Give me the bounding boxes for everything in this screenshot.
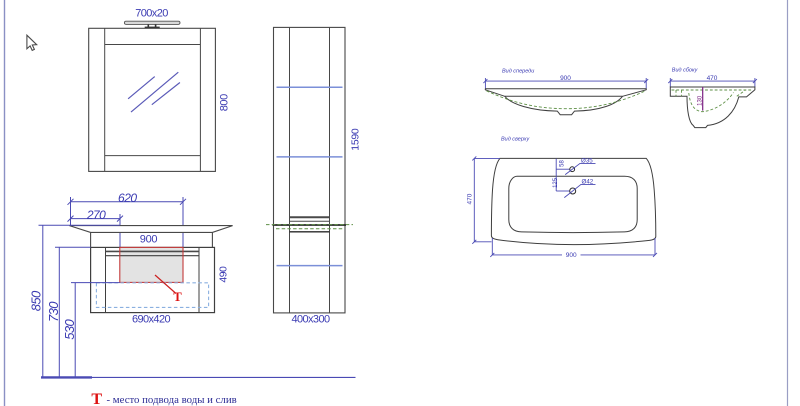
svg-text:900: 900 <box>140 233 158 245</box>
svg-text:T: T <box>91 391 102 406</box>
svg-text:400x300: 400x300 <box>291 313 329 325</box>
svg-text:T: T <box>173 290 182 304</box>
svg-text:Ø35: Ø35 <box>581 158 593 165</box>
svg-text:800: 800 <box>218 94 230 111</box>
svg-text:850: 850 <box>29 290 44 311</box>
svg-text:690x420: 690x420 <box>132 314 170 326</box>
svg-text:900: 900 <box>560 75 571 82</box>
svg-text:700x20: 700x20 <box>135 8 168 20</box>
svg-text:Ø42: Ø42 <box>582 179 594 186</box>
svg-text:270: 270 <box>86 208 106 222</box>
svg-text:900: 900 <box>566 252 577 259</box>
svg-text:1590: 1590 <box>349 128 361 151</box>
svg-text:730: 730 <box>46 301 61 322</box>
svg-text:125: 125 <box>553 177 559 188</box>
svg-text:620: 620 <box>118 191 137 205</box>
svg-text:530: 530 <box>62 318 77 339</box>
svg-text:470: 470 <box>467 193 474 204</box>
svg-text:130: 130 <box>697 95 703 106</box>
svg-text:470: 470 <box>707 75 718 82</box>
svg-text:Вид сверху: Вид сверху <box>501 137 530 143</box>
svg-text:Вид спереди: Вид спереди <box>502 68 534 74</box>
svg-text:490: 490 <box>218 266 230 283</box>
svg-text:- место подвода воды и слив: - место подвода воды и слив <box>107 394 237 406</box>
svg-text:58: 58 <box>559 160 565 167</box>
svg-text:Вид сбоку: Вид сбоку <box>672 68 699 74</box>
